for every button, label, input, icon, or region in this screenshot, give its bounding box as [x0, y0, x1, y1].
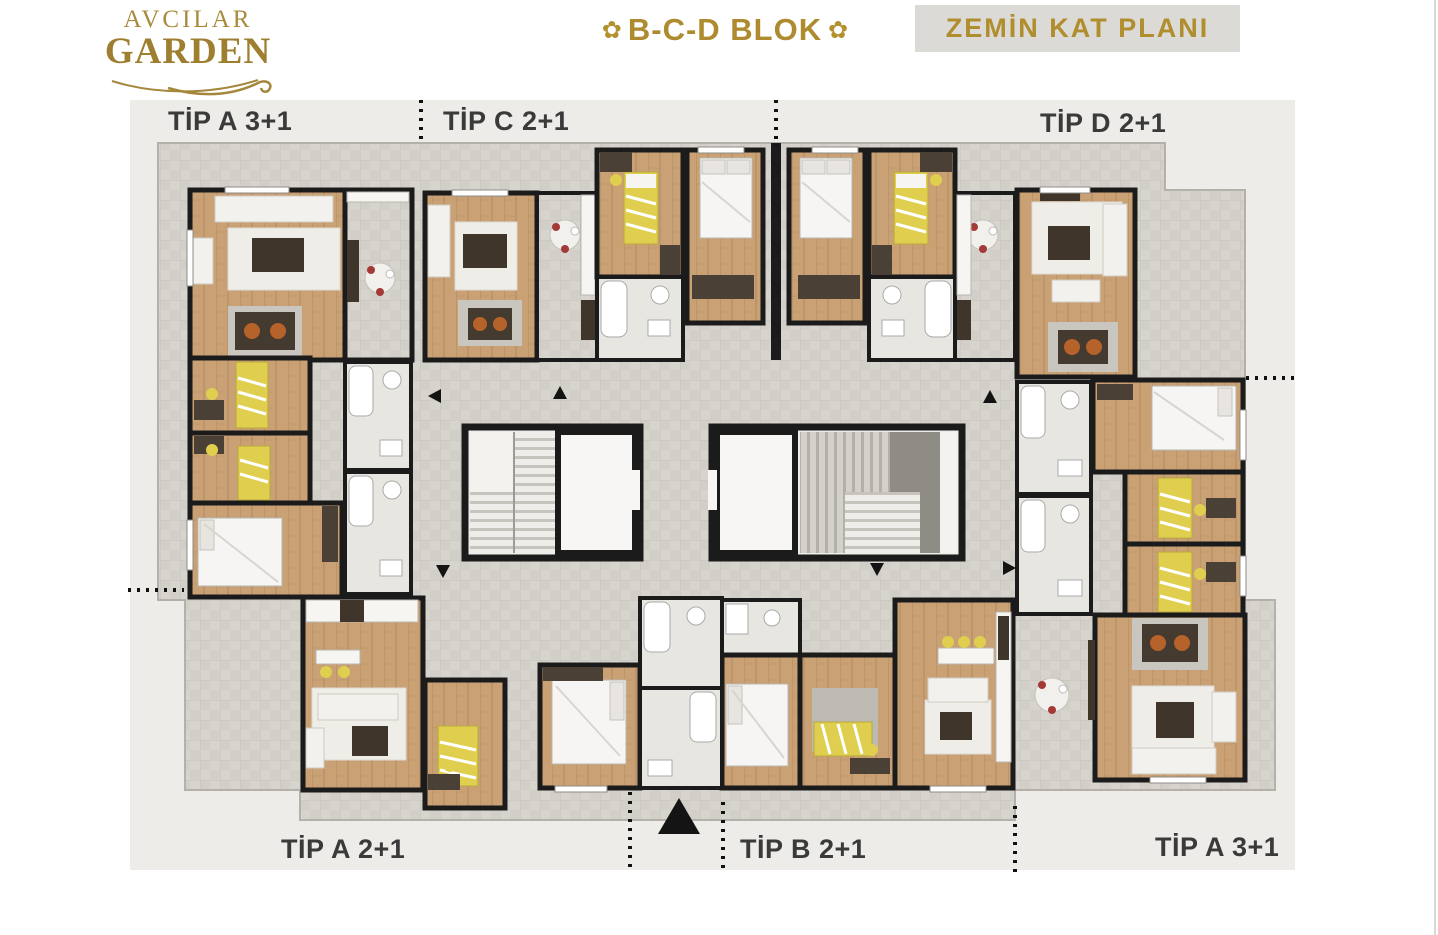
unit-label-tip-d21: TİP D 2+1: [1040, 108, 1166, 139]
unit-label-tip-a21: TİP A 2+1: [281, 834, 405, 865]
stair-elevator-core-right: [708, 427, 962, 558]
stair-elevator-core-left: [465, 427, 640, 558]
unit-tip-a31-top: [190, 190, 412, 360]
floor-plan-svg: [0, 0, 1438, 935]
unit-label-tip-a31-bottom: TİP A 3+1: [1155, 832, 1279, 863]
unit-label-tip-b21: TİP B 2+1: [740, 834, 866, 865]
elevator-door-gap: [708, 470, 717, 510]
page: AVCILAR GARDEN ✿ B-C-D BLOK ✿ ZEMİN KAT …: [0, 0, 1438, 935]
unit-tip-d21: [1017, 190, 1135, 377]
page-edge-line: [1434, 0, 1436, 935]
right-wing-bedrooms: [1017, 380, 1243, 616]
left-wing-bedrooms: [190, 358, 411, 597]
party-wall: [771, 143, 781, 360]
elevator-door-gap: [631, 470, 640, 510]
unit-label-tip-c21: TİP C 2+1: [443, 106, 569, 137]
unit-label-tip-a31-top: TİP A 3+1: [168, 106, 292, 137]
